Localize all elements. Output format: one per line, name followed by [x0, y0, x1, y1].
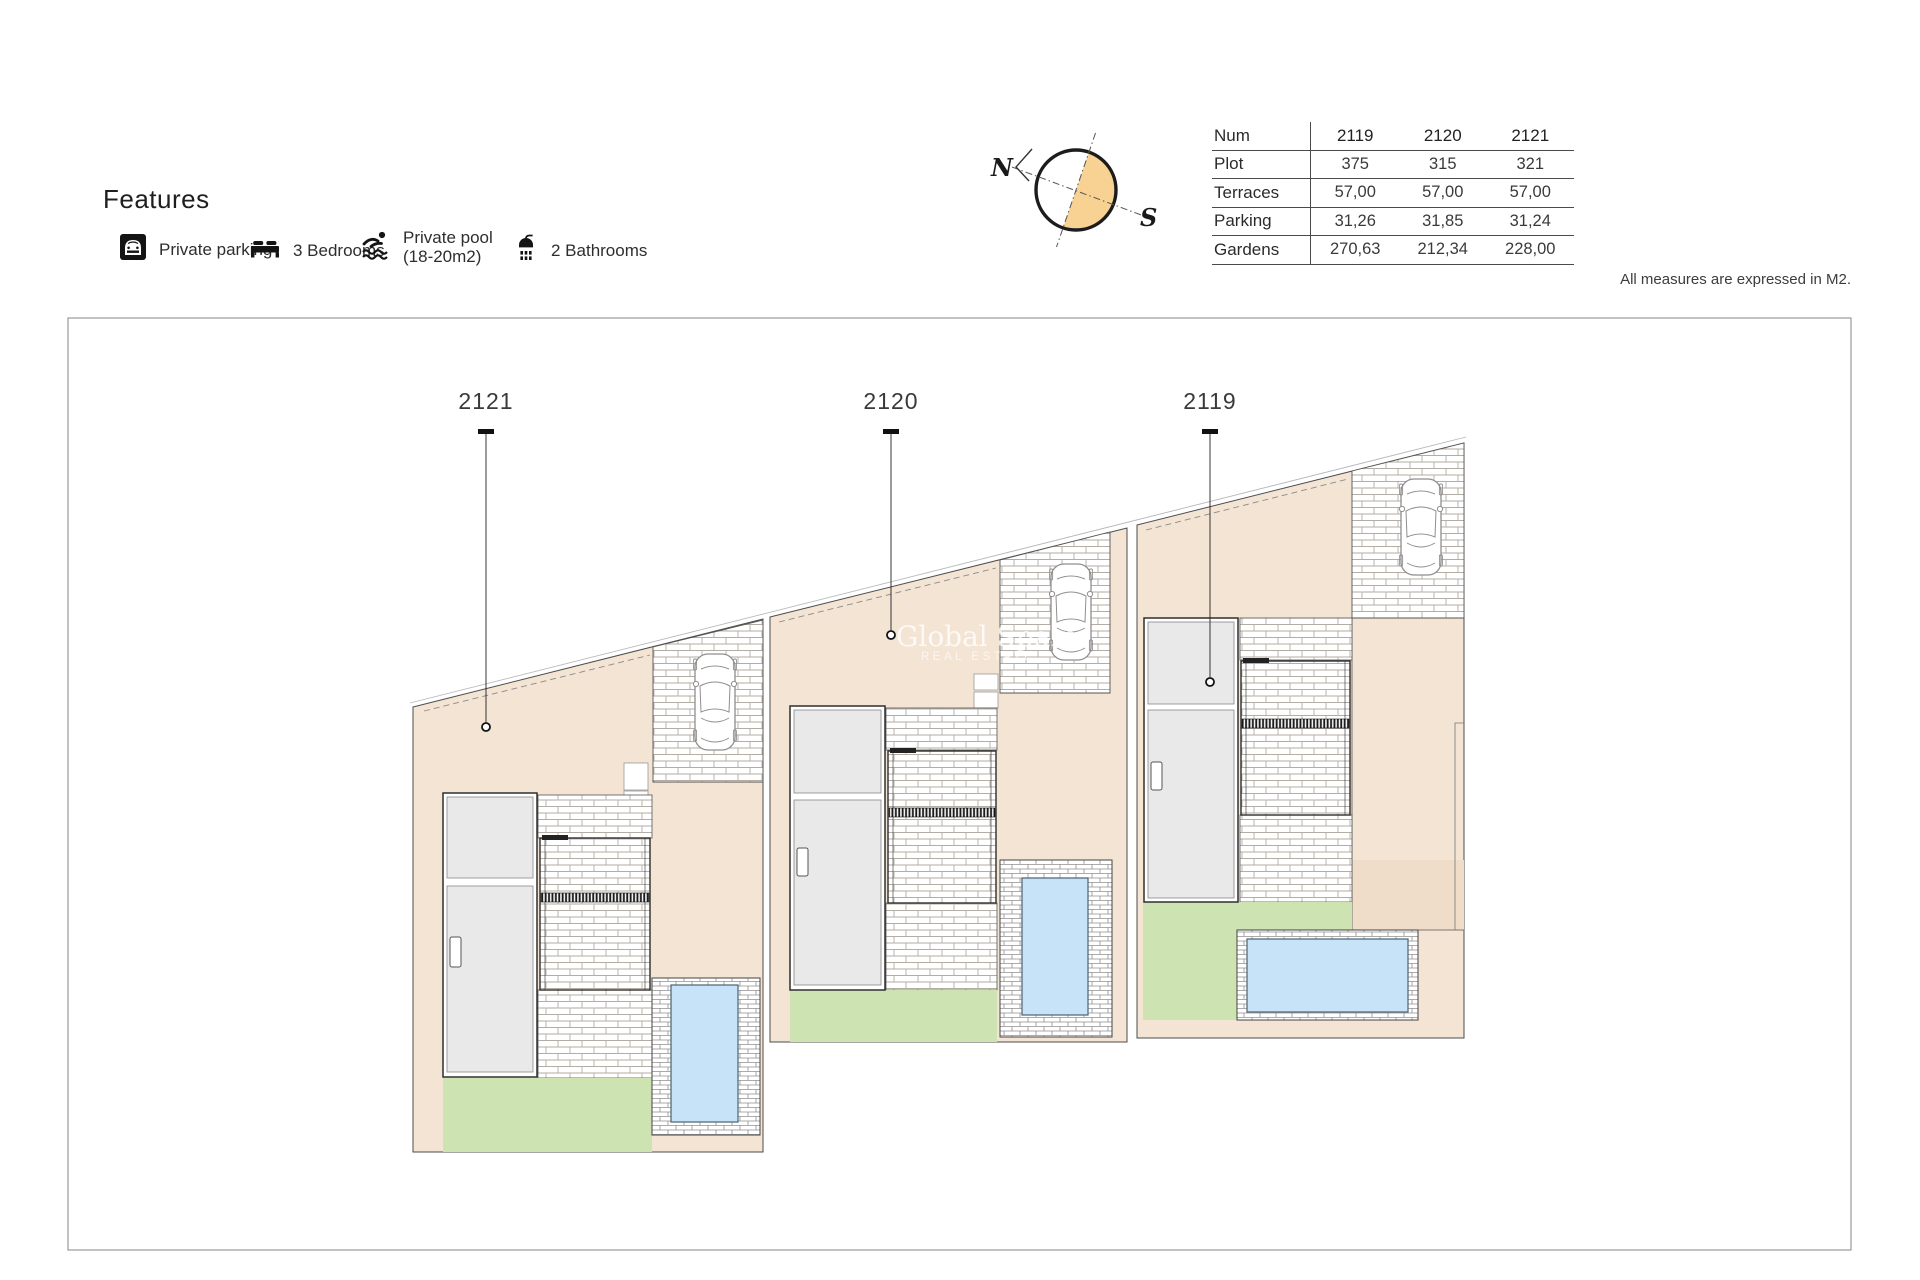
leader-dot — [482, 723, 490, 731]
entry-steps — [624, 763, 648, 790]
plot-label-2119: 2119 — [1183, 388, 1236, 414]
building-2121-upper — [447, 797, 533, 878]
entry-steps — [974, 692, 998, 708]
plot-2119 — [1137, 443, 1464, 1038]
pool-2119 — [1247, 939, 1408, 1012]
pergola-slats — [1242, 719, 1349, 728]
door-2119 — [1151, 762, 1162, 790]
patio-2119 — [1352, 860, 1464, 930]
leader-tick — [478, 429, 494, 434]
leader-tick — [1202, 429, 1218, 434]
watermark-line2: REAL ESTATE — [921, 651, 1035, 663]
leader-dot — [1206, 678, 1214, 686]
pergola-2121 — [540, 838, 650, 990]
building-2120-lower — [794, 800, 881, 985]
pool-2120 — [1022, 878, 1088, 1015]
building-2119-upper — [1148, 622, 1234, 704]
site-plan: Global Spain REAL ESTATE 2121 2120 2119 — [0, 0, 1920, 1280]
terrace-2119-bottom — [1240, 815, 1352, 902]
door-2121 — [450, 937, 461, 967]
plot-2120 — [770, 528, 1127, 1042]
terrace-2121-top — [538, 795, 652, 838]
terrace-2120-bottom — [886, 903, 997, 990]
terrace-2119-top — [1240, 618, 1352, 660]
building-2121-lower — [447, 886, 533, 1072]
building-2120-upper — [794, 710, 881, 793]
garden-2120 — [790, 990, 997, 1042]
terrace-2121-bottom — [538, 990, 652, 1078]
pergola-2120 — [888, 751, 996, 903]
plan-sheet: Features Private parking 3 Bedr — [0, 0, 1920, 1280]
entry-steps — [974, 674, 998, 690]
door-2120 — [797, 848, 808, 876]
plot-2121 — [413, 619, 763, 1152]
plot-label-2121: 2121 — [458, 388, 513, 414]
terrace-2120-top — [886, 708, 997, 750]
garden-2121 — [443, 1078, 652, 1152]
plot-label-2120: 2120 — [863, 388, 918, 414]
watermark-line1: Global Spain — [896, 620, 1077, 653]
leader-dot — [887, 631, 895, 639]
pergola-bar — [890, 748, 916, 753]
car-2121 — [693, 654, 736, 750]
car-2119 — [1399, 479, 1442, 575]
building-2119-lower — [1148, 710, 1234, 898]
pergola-2119 — [1241, 661, 1350, 815]
pergola-slats — [541, 893, 649, 902]
pergola-bar — [1243, 658, 1269, 663]
pergola-bar — [542, 835, 568, 840]
pergola-slats — [889, 808, 995, 817]
pool-2121 — [671, 985, 738, 1122]
leader-tick — [883, 429, 899, 434]
